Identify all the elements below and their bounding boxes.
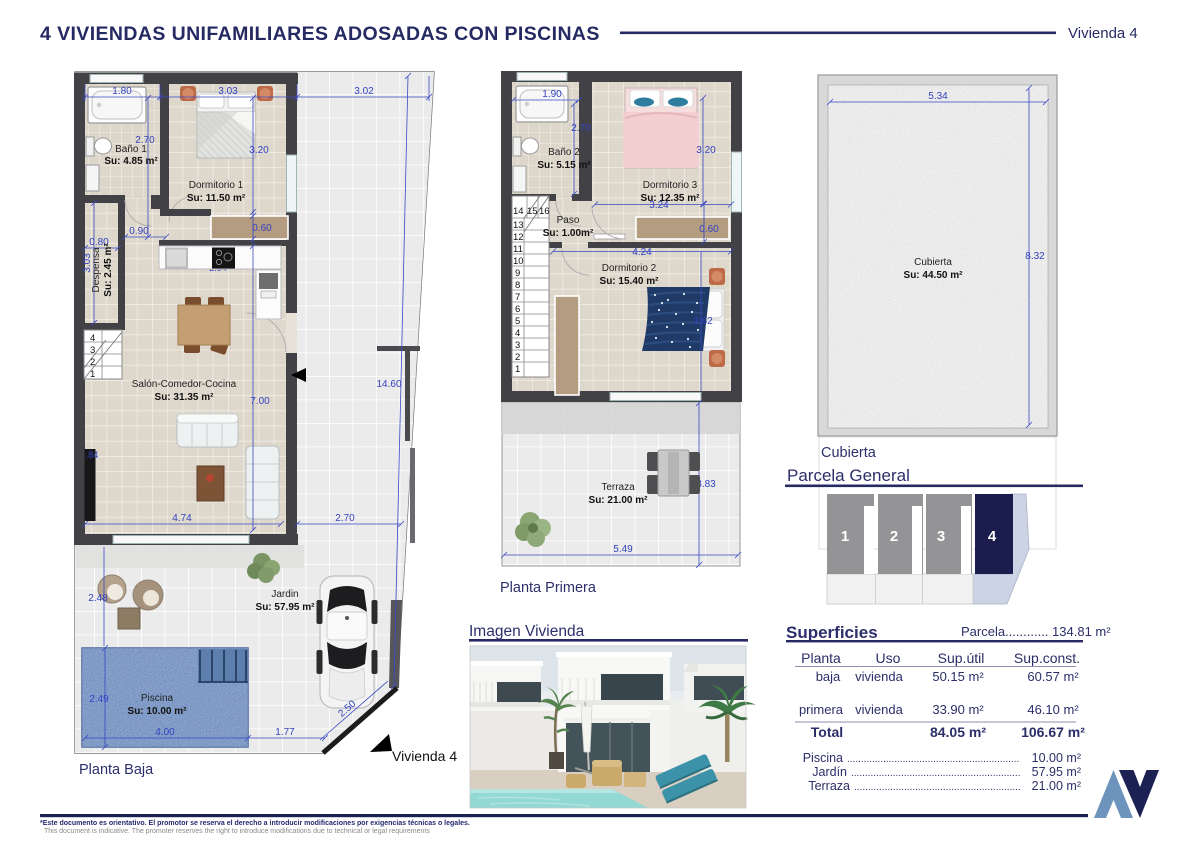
svg-text:Vivienda 4: Vivienda 4 (392, 748, 457, 764)
svg-text:Parcela............ 134.81 m²: Parcela............ 134.81 m² (961, 624, 1111, 639)
svg-text:Baño 2: Baño 2 (548, 147, 580, 158)
svg-text:4.74: 4.74 (172, 513, 192, 524)
svg-text:11: 11 (513, 244, 523, 255)
svg-text:..............................: ........................................… (851, 768, 1020, 779)
svg-text:Imagen Vivienda: Imagen Vivienda (469, 623, 585, 640)
svg-text:5: 5 (515, 316, 520, 327)
svg-text:Dormitorio 3: Dormitorio 3 (643, 180, 698, 191)
svg-text:Terraza: Terraza (601, 482, 635, 493)
svg-text:6: 6 (515, 304, 520, 315)
svg-text:4.24: 4.24 (632, 247, 652, 258)
svg-text:Su: 2.45 m²: Su: 2.45 m² (103, 243, 114, 297)
svg-text:This document is indicative. T: This document is indicative. The promote… (44, 828, 430, 835)
svg-text:12: 12 (513, 232, 524, 243)
svg-text:Su: 31.35 m²: Su: 31.35 m² (155, 392, 215, 403)
svg-text:Sup.const.: Sup.const. (1014, 650, 1080, 666)
svg-text:3: 3 (937, 528, 945, 545)
svg-text:Su: 15.40 m²: Su: 15.40 m² (600, 276, 660, 287)
svg-text:Paso: Paso (557, 215, 580, 226)
svg-text:3: 3 (90, 345, 95, 356)
svg-text:8: 8 (515, 280, 520, 291)
svg-text:Su: 11.50 m²: Su: 11.50 m² (187, 193, 246, 204)
svg-text:46.10 m²: 46.10 m² (1027, 702, 1079, 717)
svg-text:2: 2 (90, 357, 95, 368)
svg-text:Su: 10.00 m²: Su: 10.00 m² (128, 706, 188, 717)
svg-text:9: 9 (515, 268, 520, 279)
svg-text:Su: 12.35 m²: Su: 12.35 m² (641, 193, 701, 204)
svg-text:10: 10 (513, 256, 524, 267)
svg-text:Parcela General: Parcela General (787, 466, 910, 485)
svg-text:primera: primera (799, 702, 844, 717)
svg-text:Sup.útil: Sup.útil (938, 650, 985, 666)
svg-text:Jardin: Jardin (271, 589, 298, 600)
svg-text:Su: 1.00m²: Su: 1.00m² (543, 228, 594, 239)
svg-text:60.57 m²: 60.57 m² (1027, 669, 1079, 684)
svg-text:0.60: 0.60 (699, 224, 719, 235)
svg-text:2.70: 2.70 (335, 513, 355, 524)
svg-text:Dormitorio 1: Dormitorio 1 (189, 180, 244, 191)
svg-text:Cubierta: Cubierta (914, 257, 952, 268)
svg-text:8.32: 8.32 (1025, 251, 1045, 262)
svg-text:Salón-Comedor-Cocina: Salón-Comedor-Cocina (132, 379, 237, 390)
svg-text:*Este documento es orientativo: *Este documento es orientativo. El promo… (40, 820, 470, 827)
svg-text:..............................: ........................................… (847, 754, 1019, 765)
svg-text:2: 2 (515, 352, 520, 363)
svg-text:2: 2 (890, 528, 898, 545)
svg-text:Su: 44.50 m²: Su: 44.50 m² (904, 270, 964, 281)
svg-text:5.49: 5.49 (613, 544, 633, 555)
svg-text:Su: 4.85 m²: Su: 4.85 m² (104, 156, 158, 167)
svg-text:3.62: 3.62 (693, 316, 713, 327)
svg-text:15: 15 (527, 206, 538, 217)
svg-text:5.34: 5.34 (928, 91, 948, 102)
svg-text:7: 7 (515, 292, 520, 303)
svg-text:Planta Baja: Planta Baja (79, 762, 154, 778)
svg-text:Piscina: Piscina (803, 751, 843, 765)
svg-text:Baño 1: Baño 1 (115, 144, 147, 155)
svg-text:2.49: 2.49 (89, 694, 109, 705)
svg-text:1.77: 1.77 (275, 727, 295, 738)
svg-text:Planta Primera: Planta Primera (500, 580, 597, 596)
svg-text:4 VIVIENDAS UNIFAMILIARES ADOS: 4 VIVIENDAS UNIFAMILIARES ADOSADAS CON P… (40, 23, 600, 45)
svg-text:21.00 m²: 21.00 m² (1032, 779, 1081, 793)
svg-text:14: 14 (513, 206, 524, 217)
svg-text:3.20: 3.20 (249, 145, 269, 156)
svg-text:2.70: 2.70 (571, 123, 591, 134)
svg-text:Planta: Planta (801, 650, 841, 666)
svg-text:0.60: 0.60 (252, 223, 272, 234)
svg-text:1: 1 (841, 528, 849, 545)
svg-text:33.90 m²: 33.90 m² (932, 702, 984, 717)
svg-text:4: 4 (90, 333, 95, 344)
svg-text:0.90: 0.90 (129, 226, 149, 237)
svg-text:Piscina: Piscina (141, 693, 174, 704)
svg-text:3.03: 3.03 (218, 86, 238, 97)
svg-text:50.15 m²: 50.15 m² (932, 669, 984, 684)
svg-text:4: 4 (515, 328, 520, 339)
svg-text:57.95 m²: 57.95 m² (1032, 765, 1081, 779)
svg-text:vivienda: vivienda (855, 702, 903, 717)
svg-text:Despensa: Despensa (91, 247, 102, 292)
svg-text:vivienda: vivienda (855, 669, 903, 684)
svg-text:1: 1 (515, 364, 520, 375)
svg-text:baja: baja (816, 669, 841, 684)
svg-text:3: 3 (515, 340, 520, 351)
svg-text:Uso: Uso (876, 650, 901, 666)
svg-text:Total: Total (811, 724, 843, 740)
svg-text:4.00: 4.00 (155, 727, 175, 738)
svg-text:10.00 m²: 10.00 m² (1032, 751, 1081, 765)
svg-text:3.20: 3.20 (696, 145, 716, 156)
svg-text:Su: 21.00 m²: Su: 21.00 m² (589, 495, 649, 506)
svg-text:14.60: 14.60 (376, 379, 401, 390)
svg-text:13: 13 (513, 220, 524, 231)
svg-text:Jardín: Jardín (812, 765, 847, 779)
svg-text:1: 1 (90, 369, 95, 380)
svg-text:.84: .84 (86, 450, 99, 460)
svg-text:Dormitorio 2: Dormitorio 2 (602, 263, 657, 274)
svg-text:Cubierta: Cubierta (821, 445, 877, 461)
svg-text:84.05 m²: 84.05 m² (930, 724, 986, 740)
svg-text:1.80: 1.80 (112, 86, 132, 97)
svg-text:Su: 5.15 m²: Su: 5.15 m² (537, 160, 591, 171)
svg-text:..............................: ........................................… (854, 782, 1021, 793)
svg-text:4: 4 (988, 528, 997, 545)
svg-text:3.02: 3.02 (354, 86, 374, 97)
svg-text:Vivienda 4: Vivienda 4 (1068, 25, 1138, 42)
svg-text:Terraza: Terraza (808, 779, 850, 793)
svg-text:106.67 m²: 106.67 m² (1021, 724, 1085, 740)
svg-text:2.48: 2.48 (88, 593, 108, 604)
svg-text:7.00: 7.00 (250, 396, 270, 407)
svg-text:Superficies: Superficies (786, 623, 878, 642)
svg-text:16: 16 (539, 206, 550, 217)
svg-text:1.90: 1.90 (542, 89, 562, 100)
svg-text:Su: 57.95 m²: Su: 57.95 m² (256, 602, 316, 613)
